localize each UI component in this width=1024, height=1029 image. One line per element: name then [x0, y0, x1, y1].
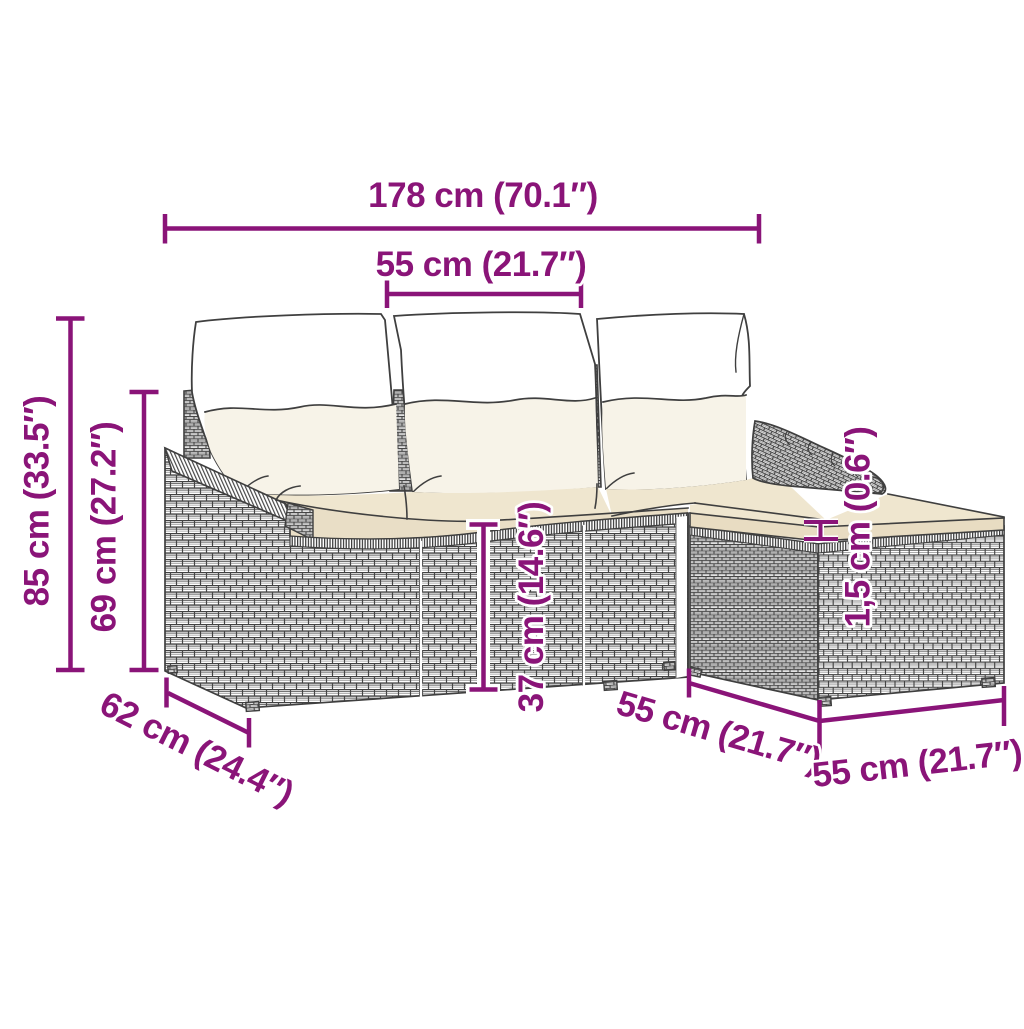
svg-text:37 cm (14.6″): 37 cm (14.6″) — [512, 502, 551, 713]
svg-text:69 cm (27.2″): 69 cm (27.2″) — [84, 422, 123, 633]
svg-text:178 cm (70.1″): 178 cm (70.1″) — [368, 176, 598, 215]
svg-text:1,5 cm (0.6″): 1,5 cm (0.6″) — [838, 427, 877, 628]
svg-text:55 cm (21.7″): 55 cm (21.7″) — [376, 245, 587, 284]
svg-text:85 cm (33.5″): 85 cm (33.5″) — [17, 396, 56, 607]
